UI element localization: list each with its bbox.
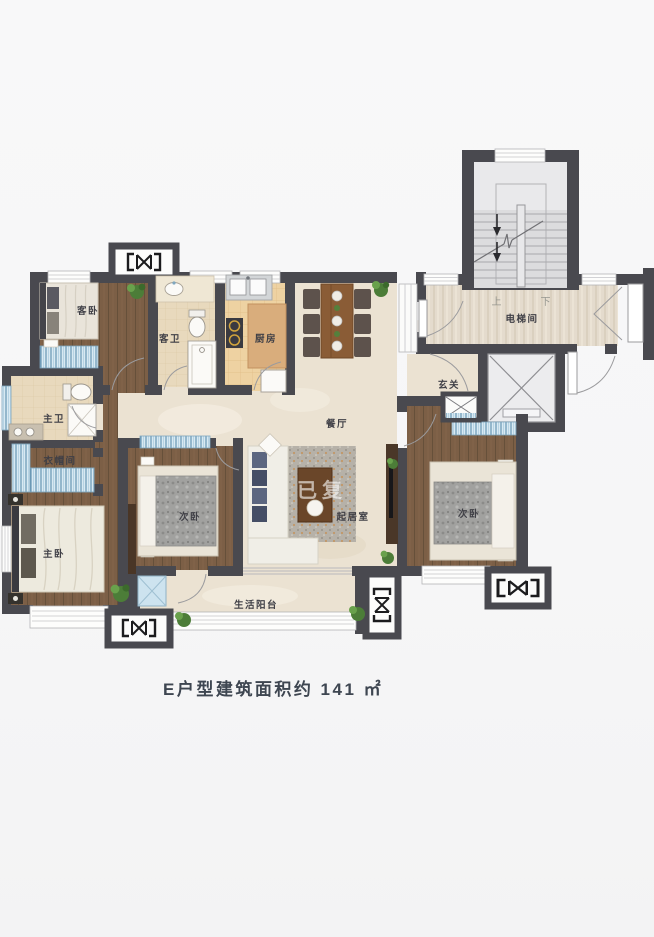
watermark-text: 已复 [297, 478, 347, 502]
neighbor-door-leaf [628, 284, 643, 342]
dining-set [303, 284, 371, 358]
fridge-icon [261, 370, 286, 392]
second-bedroom-furniture [128, 457, 218, 574]
kitchen-sink-icon [230, 279, 246, 295]
wall-master-bottom-left [2, 605, 33, 614]
wall-hall-bottom-stub [605, 344, 617, 354]
corridor-door-arc [577, 356, 615, 393]
label-third-bedroom: 次卧 [458, 508, 480, 520]
floorplan-page: 客卧 客卫 厨房 餐厅 玄关 电梯间 上 下 主卫 衣帽间 主卧 次卧 起居室 … [0, 0, 654, 937]
second-bedroom-window [140, 436, 210, 448]
marble-vein [158, 404, 242, 436]
wall-second-bottom-b [208, 566, 243, 576]
wall-masterbath-right-a [93, 376, 103, 404]
wall-master-second-shared [118, 438, 128, 576]
plan-caption: E户型建筑面积约 141 ㎡ [163, 675, 383, 700]
wall-second-bottom-a [118, 566, 176, 576]
guest-bedroom-window-seat [40, 346, 98, 368]
label-master-bathroom: 主卫 [43, 413, 65, 425]
label-stairs-down: 下 [541, 297, 552, 308]
label-master-bedroom: 主卧 [43, 548, 65, 560]
corridor-door-leaf [568, 352, 577, 394]
stair-rail [517, 205, 525, 287]
master-corridor-floor [103, 393, 118, 443]
wall-outer-right [643, 268, 654, 360]
label-kitchen: 厨房 [255, 333, 277, 345]
stove-icon [226, 318, 243, 348]
label-stairs-up: 上 [492, 296, 503, 308]
wall-cloakroom-right-a [93, 448, 103, 457]
foyer-duct [443, 394, 479, 420]
stairwell [462, 150, 579, 290]
plate-icon [332, 291, 342, 301]
wall-guestbath-right [215, 272, 225, 385]
foyer-floor [407, 354, 478, 398]
label-cloakroom: 衣帽间 [43, 455, 76, 467]
label-second-bedroom: 次卧 [179, 511, 201, 523]
balcony-items [138, 576, 166, 606]
wall-third-left-a [397, 404, 407, 412]
wall-guest-left [30, 272, 40, 372]
wall-third-left-b [397, 448, 407, 576]
wall-hall-bottom-left [416, 344, 478, 354]
third-bedroom-window [452, 422, 516, 435]
unit-entry-door-leaf [419, 300, 427, 337]
label-balcony: 生活阳台 [234, 599, 278, 611]
wall-cloakroom-right-b [93, 484, 103, 496]
label-guest-bedroom: 客卧 [76, 305, 99, 317]
wall-hall-seg [103, 385, 110, 395]
wall-third-right [516, 414, 528, 576]
sofa-chaise [248, 538, 318, 564]
stair-landing [474, 162, 567, 210]
toilet-icon [189, 317, 205, 337]
label-elevator-hall: 电梯间 [505, 313, 538, 325]
toilet-icon [71, 384, 91, 400]
wall-hall-seg [145, 385, 162, 395]
label-dining-room: 餐厅 [325, 418, 348, 430]
label-living-room: 起居室 [335, 511, 369, 523]
label-foyer: 玄关 [438, 379, 460, 391]
wall-second-right [233, 438, 243, 576]
tv-icon [389, 468, 393, 518]
label-guest-bathroom: 客卫 [158, 333, 181, 345]
wardrobe [128, 504, 136, 574]
floorplan-drawing: 客卧 客卫 厨房 餐厅 玄关 电梯间 上 下 主卫 衣帽间 主卧 次卧 起居室 … [0, 0, 654, 937]
master-bath-window [2, 386, 11, 430]
